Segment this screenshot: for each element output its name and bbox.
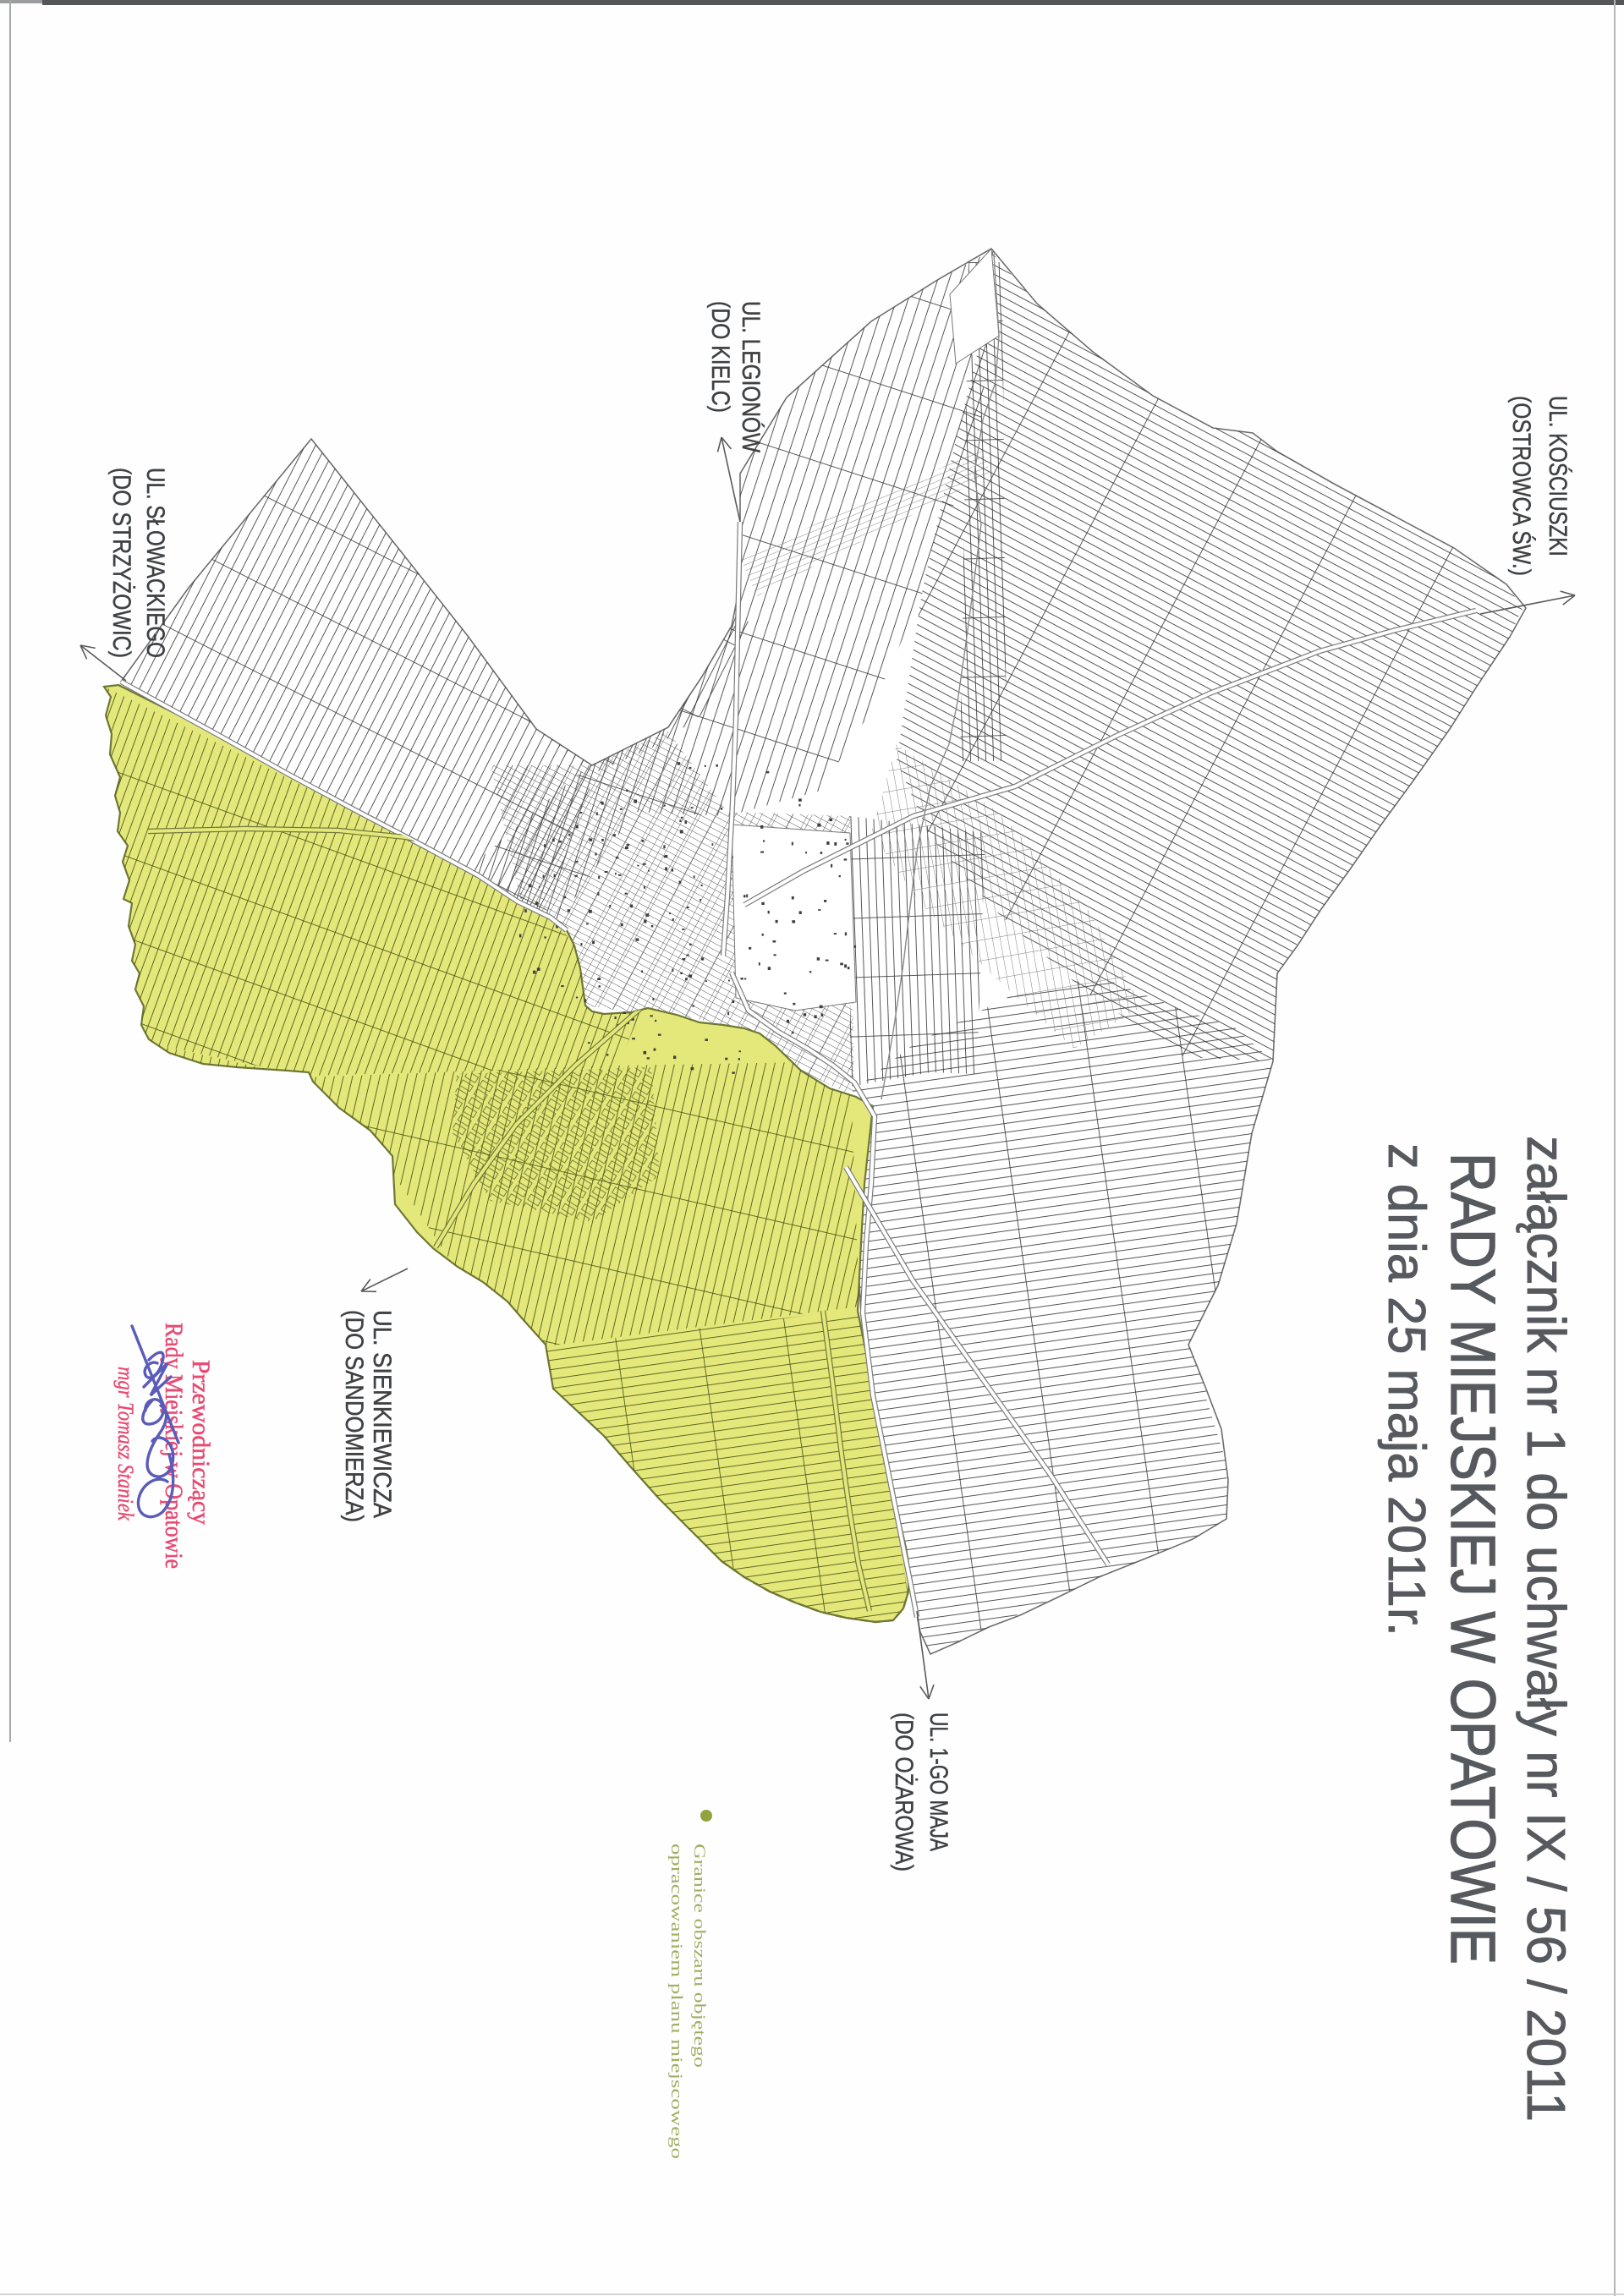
svg-text:UL. KOŚCIUSZKI: UL. KOŚCIUSZKI [1544, 396, 1572, 556]
svg-text:mgr Tomasz Staniek: mgr Tomasz Staniek [113, 1367, 138, 1521]
svg-text:(OSTROWCA ŚW.): (OSTROWCA ŚW.) [1507, 396, 1536, 576]
svg-text:(DO OŻAROWA): (DO OŻAROWA) [890, 1712, 918, 1871]
svg-text:(DO SANDOMIERZA): (DO SANDOMIERZA) [340, 1310, 368, 1522]
svg-text:UL. SIENKIEWICZA: UL. SIENKIEWICZA [368, 1310, 396, 1518]
svg-text:UL. 1-GO MAJA: UL. 1-GO MAJA [924, 1712, 952, 1851]
svg-text:Przewodniczący: Przewodniczący [187, 1360, 215, 1525]
svg-text:UL. LEGIONÓW: UL. LEGIONÓW [737, 301, 765, 453]
svg-text:(DO KIELC): (DO KIELC) [706, 301, 734, 413]
svg-text:z dnia 25 maja 2011r.: z dnia 25 maja 2011r. [1377, 1143, 1435, 1636]
svg-text:(DO STRZYŻOWIC): (DO STRZYŻOWIC) [107, 468, 135, 658]
svg-text:RADY MIEJSKIEJ W OPATOWIE: RADY MIEJSKIEJ W OPATOWIE [1438, 1153, 1508, 1964]
svg-text:opracowaniem planu miejscowego: opracowaniem planu miejscowego [667, 1844, 685, 2159]
svg-text:Granice obszaru objętego: Granice obszaru objętego [690, 1844, 708, 2068]
svg-text:UL. SŁOWACKIEGO: UL. SŁOWACKIEGO [141, 468, 169, 658]
svg-text:załącznik nr 1 do uchwały nr I: załącznik nr 1 do uchwały nr IX / 56 / 2… [1516, 1136, 1577, 2122]
